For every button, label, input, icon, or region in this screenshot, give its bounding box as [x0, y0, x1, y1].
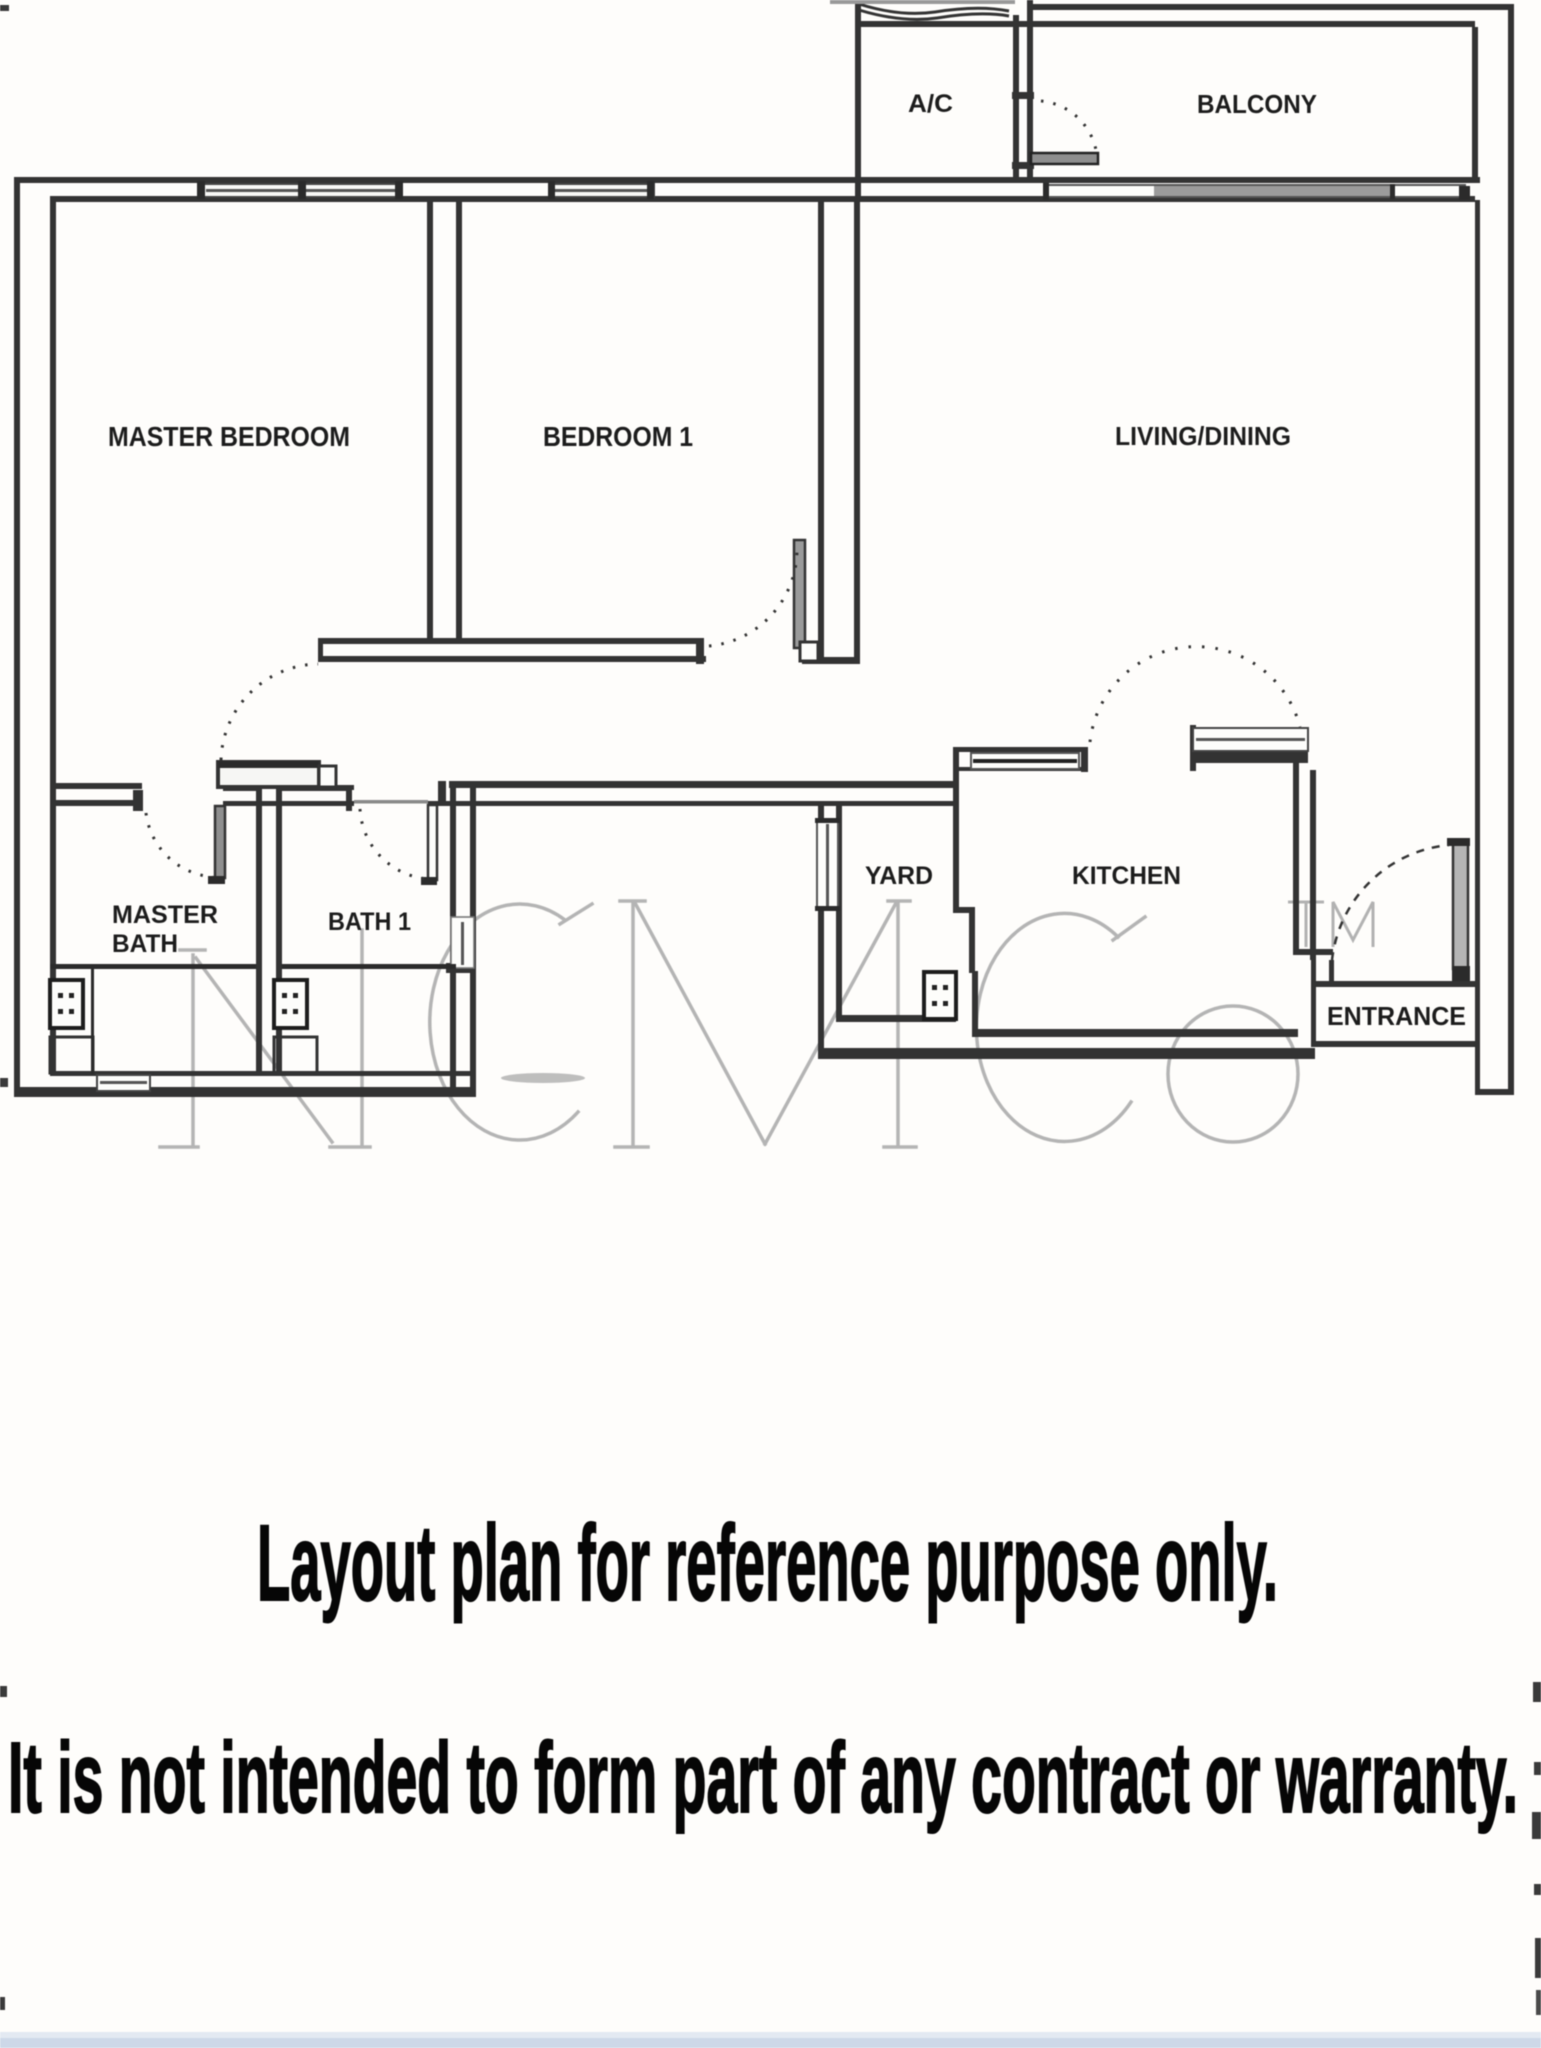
svg-text:Layout plan for reference purp: Layout plan for reference purpose only.	[257, 1502, 1278, 1623]
svg-text:BATH 1: BATH 1	[328, 908, 411, 936]
svg-text:It is not intended to form par: It is not intended to form part of any c…	[8, 1722, 1518, 1834]
svg-text:LIVING/DINING: LIVING/DINING	[1115, 421, 1291, 451]
svg-text:YARD: YARD	[865, 862, 933, 890]
svg-text:A/C: A/C	[908, 90, 953, 118]
svg-text:BEDROOM 1: BEDROOM 1	[543, 421, 693, 452]
svg-text:MASTER: MASTER	[112, 901, 218, 929]
svg-text:KITCHEN: KITCHEN	[1072, 862, 1181, 890]
svg-text:ENTRANCE: ENTRANCE	[1327, 1001, 1466, 1031]
svg-text:MASTER BEDROOM: MASTER BEDROOM	[108, 421, 350, 452]
svg-text:BALCONY: BALCONY	[1197, 89, 1317, 119]
svg-text:BATH: BATH	[112, 930, 178, 958]
